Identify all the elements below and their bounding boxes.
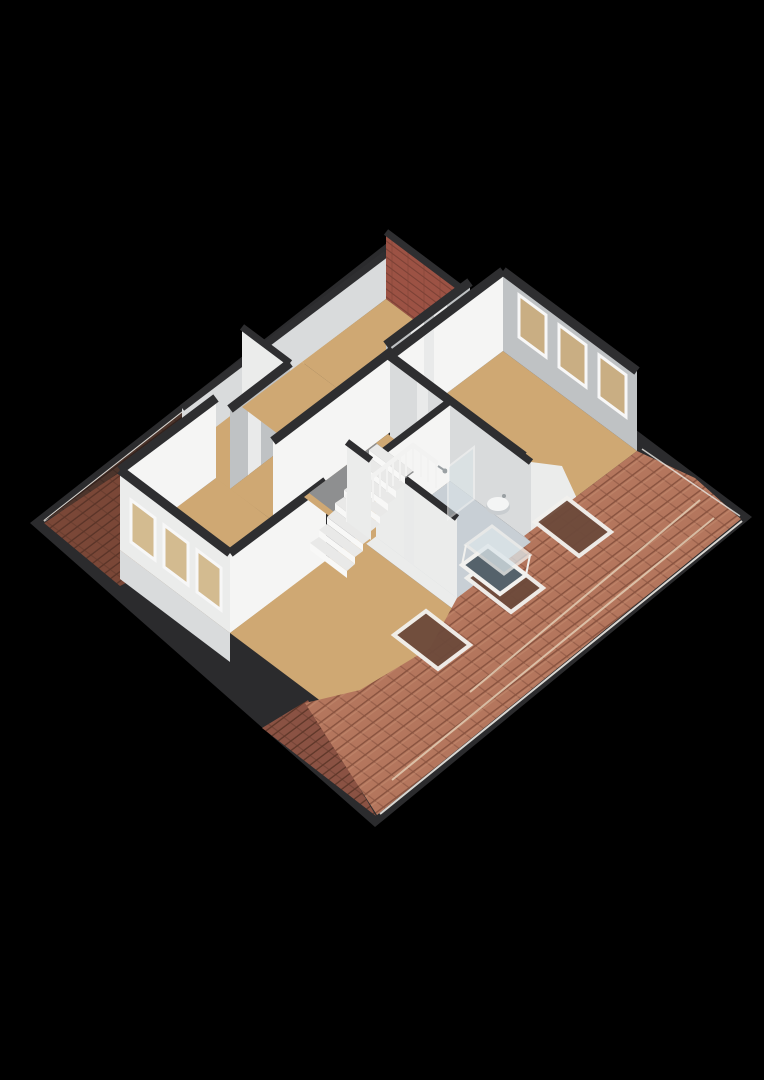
floorplan-image bbox=[0, 0, 764, 1080]
shower-head-icon bbox=[443, 469, 448, 474]
door bbox=[404, 478, 414, 566]
floorplan-svg bbox=[0, 0, 764, 1080]
tap bbox=[502, 494, 506, 498]
washbasin bbox=[487, 497, 509, 511]
